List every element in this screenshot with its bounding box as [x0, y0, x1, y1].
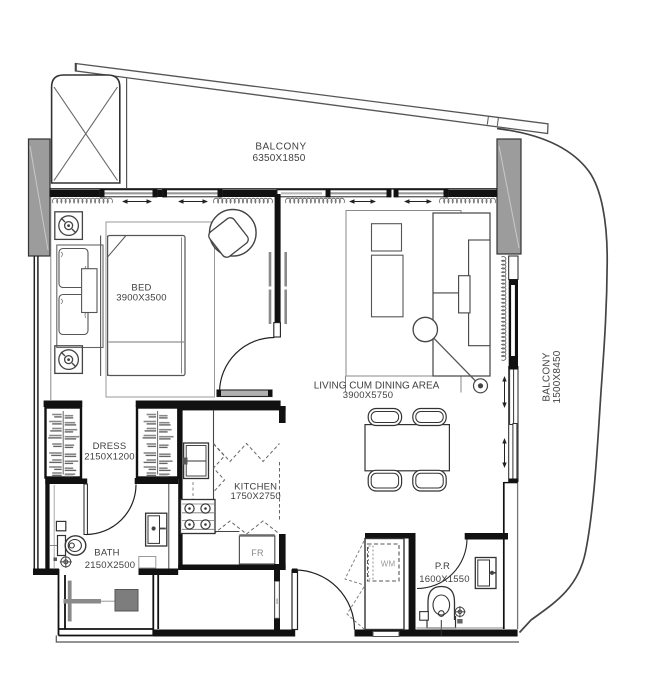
svg-text:P.R: P.R [435, 561, 450, 572]
svg-text:WM: WM [381, 560, 396, 569]
svg-text:2150X1200: 2150X1200 [84, 452, 134, 463]
svg-text:FR: FR [251, 548, 264, 558]
svg-text:3900X5750: 3900X5750 [343, 390, 393, 401]
svg-text:BALCONY: BALCONY [255, 142, 306, 153]
svg-text:BALCONY: BALCONY [542, 352, 553, 401]
svg-text:1500X8450: 1500X8450 [552, 350, 563, 403]
svg-text:BATH: BATH [94, 548, 119, 559]
svg-text:3900X3500: 3900X3500 [116, 293, 166, 304]
svg-text:6350X1850: 6350X1850 [253, 153, 306, 164]
svg-text:DRESS: DRESS [93, 441, 127, 452]
svg-text:2150X2500: 2150X2500 [85, 560, 135, 571]
svg-text:1600X1550: 1600X1550 [419, 574, 469, 585]
svg-text:1750X2750: 1750X2750 [230, 491, 280, 502]
